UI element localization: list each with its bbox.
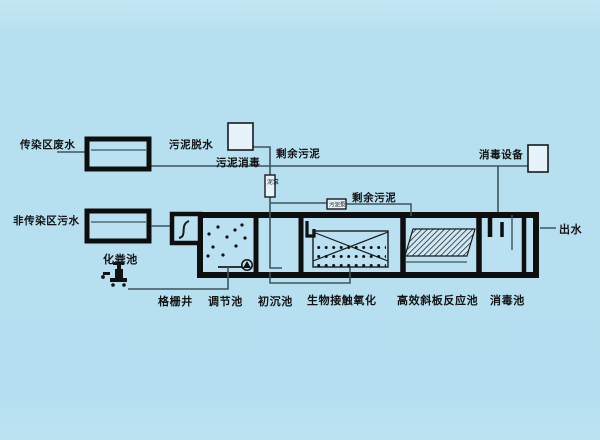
sludge-pump-vertical: 泥泵 <box>265 175 279 197</box>
screen-well <box>172 214 200 243</box>
label-infectious-wastewater: 传染区废水 <box>19 138 76 151</box>
non-infectious-sewage-tank <box>87 211 174 241</box>
label-disinfection-tank: 消毒池 <box>490 293 525 307</box>
process-flow-diagram: 传染区废水 非传染区污水 <box>0 0 600 440</box>
label-inclined-plate-reactor: 高效斜板反应池 <box>397 293 478 307</box>
diagram-canvas: 传染区废水 非传染区污水 <box>0 0 600 440</box>
inclined-plates-icon <box>405 229 475 256</box>
disinfection-equipment-unit <box>528 145 548 172</box>
label-effluent: 出水 <box>559 222 583 236</box>
label-regulating-tank: 调节池 <box>208 294 243 308</box>
sludge-pump-vertical-text: 泥泵 <box>267 178 279 186</box>
label-sludge-disinfection: 污泥消毒 <box>216 156 260 169</box>
label-septic-tank: 化粪池 <box>103 252 138 266</box>
media-dots <box>315 242 386 268</box>
label-bio-contact-oxidation: 生物接触氧化 <box>307 293 377 307</box>
label-disinfection-equipment: 消毒设备 <box>479 148 523 161</box>
label-sludge-dewatering: 污泥脱水 <box>169 138 213 151</box>
sludge-pump-horizontal-text: 污泥泵 <box>329 201 346 209</box>
sludge-dewatering-unit <box>228 123 253 150</box>
label-non-infectious-sewage: 非传染区污水 <box>13 214 80 227</box>
label-excess-sludge-lower: 剩余污泥 <box>352 191 396 204</box>
label-screen-well: 格栅井 <box>158 294 193 308</box>
label-excess-sludge-upper: 剩余污泥 <box>276 147 320 160</box>
label-primary-sedimentation: 初沉池 <box>258 294 293 308</box>
